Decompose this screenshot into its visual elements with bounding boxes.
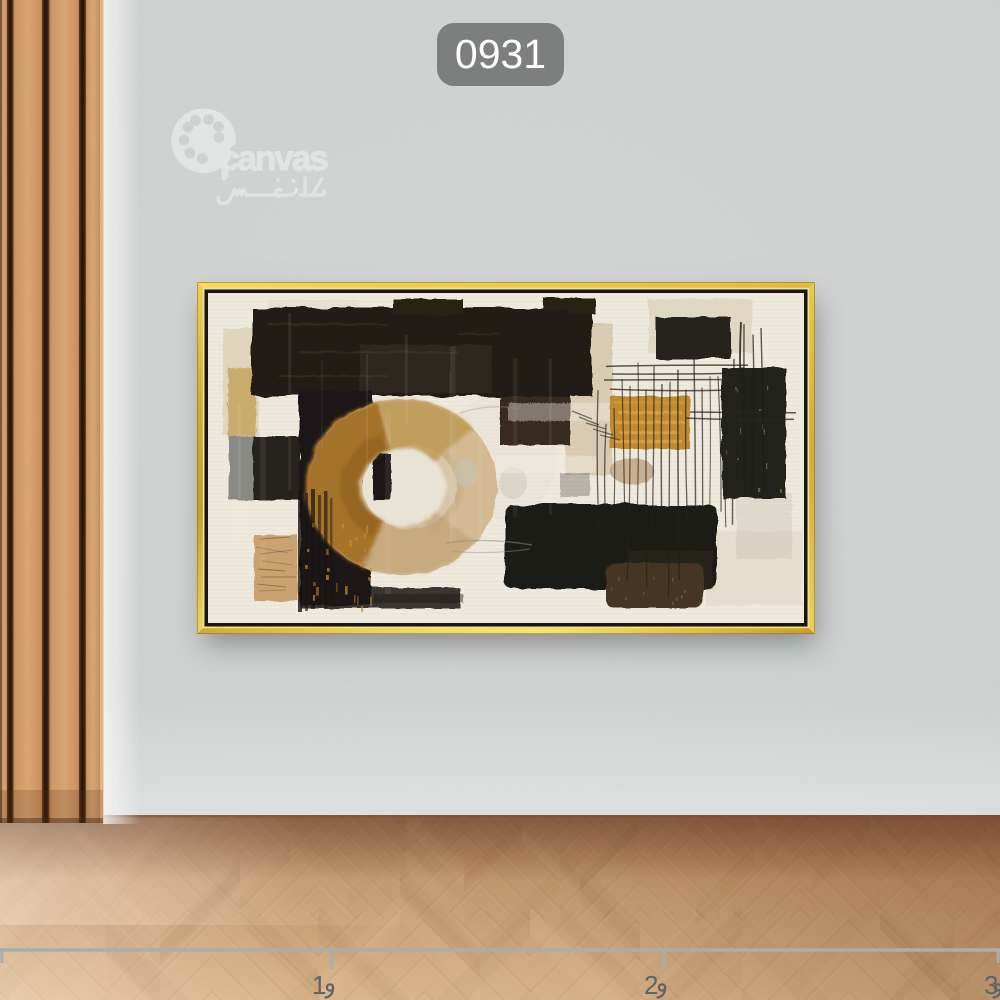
svg-text:1: 1 <box>312 970 326 1000</box>
svg-text:canvas: canvas <box>220 139 328 178</box>
svg-text:2: 2 <box>644 970 658 1000</box>
